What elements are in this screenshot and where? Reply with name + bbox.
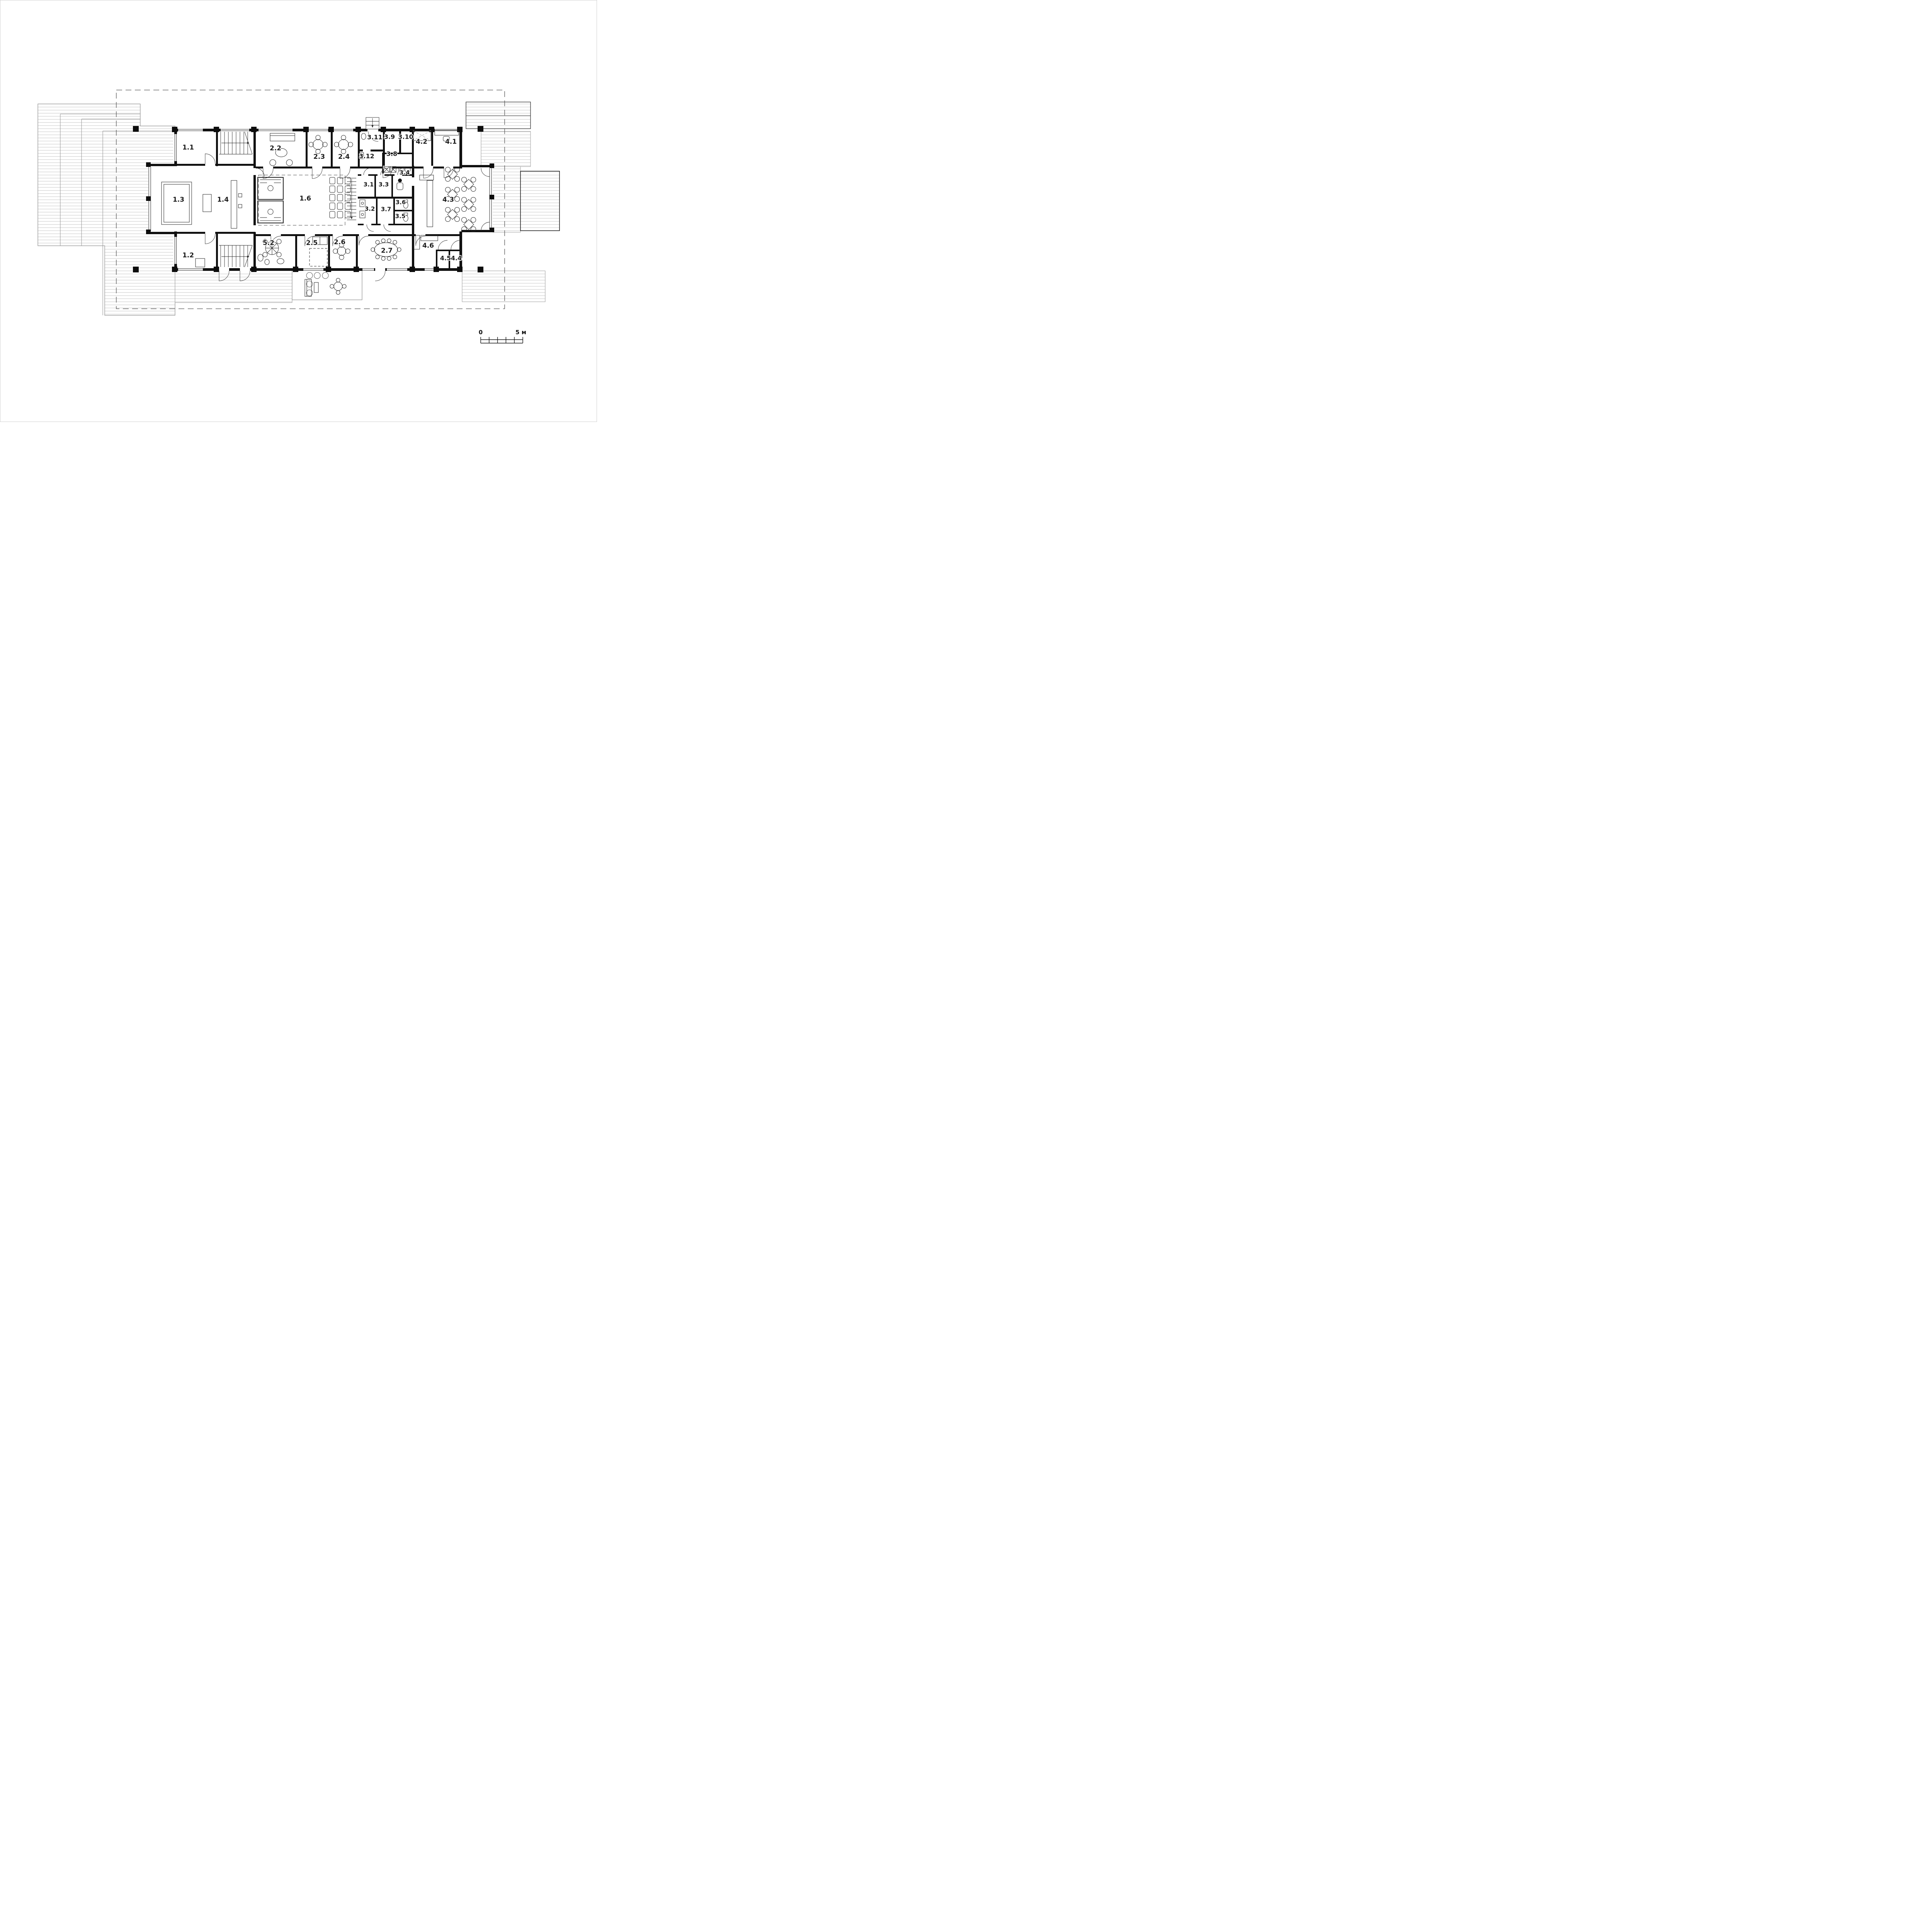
east-deck-upper (481, 131, 531, 167)
west-bay-floor (148, 164, 175, 235)
room-label-3.1: 3.1 (364, 181, 374, 188)
east-annex-roof (520, 171, 560, 231)
room-label-3.3: 3.3 (379, 181, 389, 188)
room-label-2.3: 2.3 (313, 153, 325, 161)
east-bay-floor (461, 165, 493, 233)
room-label-2.5: 2.5 (306, 239, 318, 247)
room-label-4.5: 4.5 (440, 255, 451, 262)
room-label-4.1: 4.1 (445, 138, 457, 146)
room-label-3.4: 3.4 (400, 169, 410, 176)
room-label-3.10: 3.10 (398, 133, 413, 141)
room-label-3.12: 3.12 (359, 153, 374, 160)
floor-plan-page: 1.11.21.31.41.62.22.32.42.52.62.73.13.23… (0, 0, 597, 422)
canopy-column (133, 126, 139, 132)
east-deck-mid (490, 167, 520, 232)
canopy-column (133, 267, 139, 272)
patio-floor (292, 270, 362, 300)
room-label-3.11: 3.11 (367, 134, 382, 141)
room-label-3.6: 3.6 (396, 199, 406, 206)
entry-canopy-steps (366, 117, 379, 129)
scale-end-label: 5 м (515, 329, 526, 336)
south-deck (175, 271, 292, 303)
room-label-3.8: 3.8 (386, 150, 397, 158)
canopy-column (478, 267, 483, 272)
scale-zero-label: 0 (479, 329, 483, 336)
room-label-2.6: 2.6 (334, 238, 345, 246)
room-label-3.2: 3.2 (365, 206, 375, 213)
room-label-5.2: 5.2 (263, 239, 274, 247)
room-label-1.3: 1.3 (173, 196, 184, 204)
room-label-3.7: 3.7 (381, 206, 391, 213)
room-label-3.5: 3.5 (395, 213, 406, 220)
room-label-2.2: 2.2 (270, 145, 281, 152)
room-label-1.1: 1.1 (182, 144, 194, 151)
room-label-4.3: 4.3 (442, 196, 454, 204)
room-label-2.4: 2.4 (338, 153, 350, 161)
room-label-1.2: 1.2 (182, 252, 194, 259)
room-label-4.4: 4.4 (451, 255, 462, 262)
room-label-4.6: 4.6 (422, 242, 434, 250)
room-label-1.6: 1.6 (299, 195, 311, 202)
south-east-deck (462, 271, 545, 302)
room-label-1.4: 1.4 (217, 196, 229, 204)
room-label-4.2: 4.2 (416, 138, 427, 146)
floor-plan-canvas: 1.11.21.31.41.62.22.32.42.52.62.73.13.23… (0, 0, 597, 422)
canopy-column (478, 126, 483, 132)
scale-bar: 0 5 м (479, 329, 526, 343)
room-label-2.7: 2.7 (381, 247, 393, 255)
room-label-3.9: 3.9 (384, 133, 395, 141)
